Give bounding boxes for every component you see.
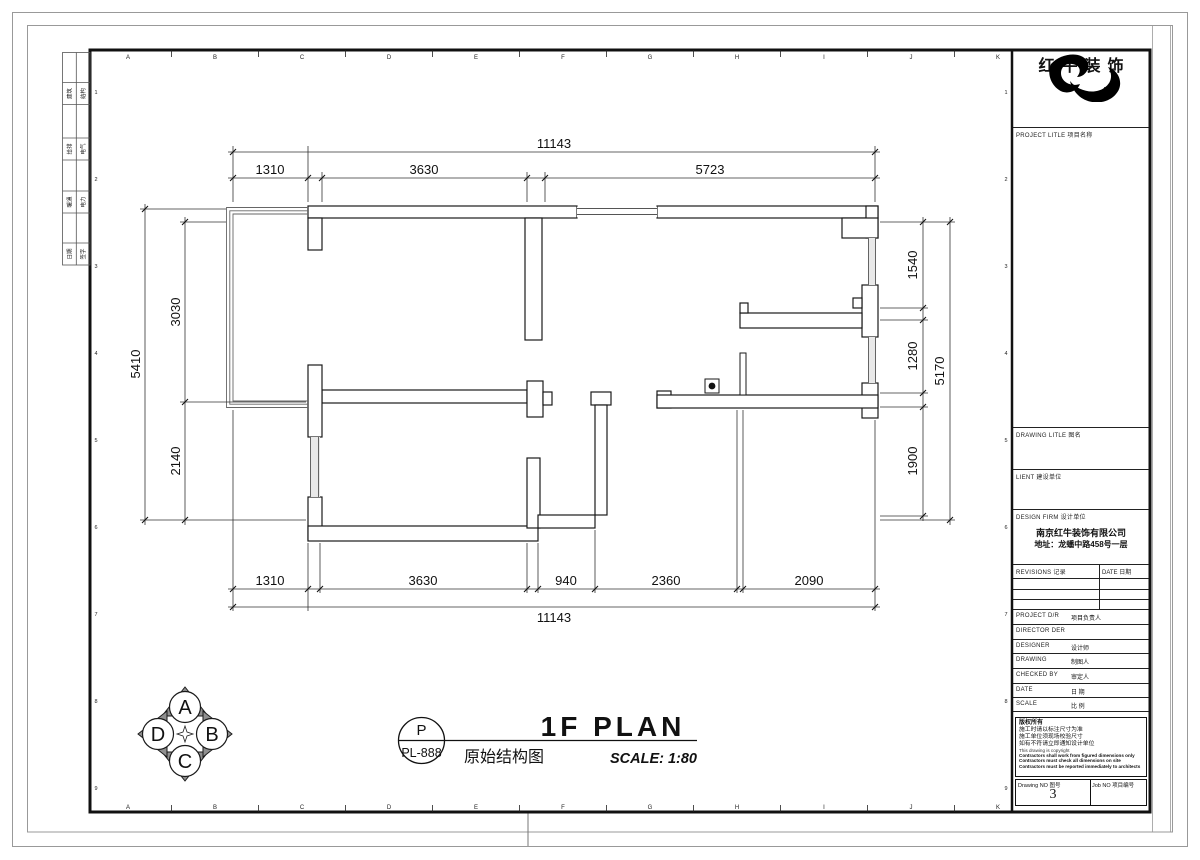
svg-text:8: 8 (94, 699, 97, 705)
sheet-ref-letter: P (416, 722, 426, 739)
svg-text:C: C (300, 55, 305, 61)
svg-text:6: 6 (94, 525, 97, 531)
svg-text:3030: 3030 (168, 298, 183, 327)
svg-text:E: E (474, 805, 478, 811)
svg-text:K: K (996, 805, 1000, 811)
svg-text:B: B (213, 805, 217, 811)
svg-text:3630: 3630 (409, 573, 438, 588)
svg-text:2090: 2090 (795, 573, 824, 588)
svg-text:1310: 1310 (256, 573, 285, 588)
svg-text:2360: 2360 (652, 573, 681, 588)
compass-center-star (177, 726, 193, 742)
gas-meter-dot (709, 383, 716, 390)
svg-text:5170: 5170 (932, 357, 947, 386)
revisions-box: REVISIONS 记录 DATE 日期 (1013, 565, 1149, 610)
svg-text:I: I (823, 805, 825, 811)
row-date: DATE 日 期 (1013, 684, 1149, 698)
svg-text:5410: 5410 (128, 350, 143, 379)
svg-text:1540: 1540 (905, 251, 920, 280)
design-firm-label: DESIGN FIRM 设计单位 (1016, 512, 1086, 521)
svg-text:签字: 签字 (79, 248, 87, 260)
svg-text:H: H (735, 805, 739, 811)
client-box: LIENT 建设单位 (1013, 470, 1149, 510)
project-title-label: PROJECT LITLE 项目名称 (1016, 130, 1093, 139)
title-block: 红牛装饰 PROJECT LITLE 项目名称 DRAWING LITLE 图名… (1013, 50, 1149, 812)
svg-text:1: 1 (1004, 90, 1007, 96)
revisions-date-label: DATE 日期 (1102, 567, 1131, 576)
drawing-title-bar: P PL-888 1F PLAN 原始结构图 SCALE: 1:80 (399, 711, 698, 767)
svg-text:7: 7 (94, 612, 97, 618)
client-label: LIENT 建设单位 (1016, 472, 1062, 481)
project-title-box: PROJECT LITLE 项目名称 (1013, 128, 1149, 428)
svg-text:11143: 11143 (537, 136, 571, 151)
svg-text:2: 2 (94, 177, 97, 183)
svg-text:H: H (735, 55, 739, 61)
svg-text:结构: 结构 (79, 88, 87, 100)
drawing-sheet: 建筑 结构 给排 电气 暖通 电力 日期 签字 A B C D E F G H … (0, 0, 1200, 860)
svg-text:I: I (823, 55, 825, 61)
drawing-number-box: Drawing NO 图号 3 Job NO 项目编号 (1015, 779, 1147, 806)
design-firm-name: 南京红牛装饰有限公司 (1013, 526, 1149, 539)
svg-text:给排: 给排 (65, 143, 73, 155)
svg-text:1310: 1310 (256, 162, 285, 177)
drawing-title-label: DRAWING LITLE 图名 (1016, 430, 1081, 439)
svg-text:J: J (910, 805, 913, 811)
plan-scale: SCALE: 1:80 (610, 751, 697, 767)
svg-text:1: 1 (94, 90, 97, 96)
row-designer: DESIGNER 设计师 (1013, 640, 1149, 654)
svg-text:B: B (205, 724, 218, 746)
sheet-ref-number: PL-888 (401, 746, 441, 760)
revisions-label: REVISIONS 记录 (1016, 567, 1066, 576)
svg-text:D: D (387, 55, 392, 61)
svg-text:G: G (648, 805, 653, 811)
svg-text:5: 5 (94, 438, 97, 444)
svg-text:C: C (300, 805, 305, 811)
svg-text:D: D (387, 805, 392, 811)
brand-logo-icon (1013, 50, 1149, 102)
row-checked-by: CHECKED BY 审定人 (1013, 669, 1149, 684)
svg-text:5723: 5723 (696, 162, 725, 177)
svg-text:9: 9 (94, 786, 97, 792)
svg-text:建筑: 建筑 (65, 88, 73, 100)
svg-text:2140: 2140 (168, 447, 183, 476)
grid-letters-top: A B C D E F G H I J K (126, 50, 1000, 61)
svg-text:1280: 1280 (905, 342, 920, 371)
row-director: DIRECTOR DER (1013, 625, 1149, 640)
floor-plan-walls (308, 206, 878, 541)
row-drawing: DRAWING 制图人 (1013, 654, 1149, 669)
plan-title-en: 1F PLAN (541, 711, 686, 742)
north-compass: A B C D (138, 687, 232, 781)
svg-text:6: 6 (1004, 525, 1007, 531)
job-no-label: Job NO 项目编号 (1092, 781, 1134, 789)
svg-text:4: 4 (94, 351, 97, 357)
svg-text:7: 7 (1004, 612, 1007, 618)
svg-text:3: 3 (1004, 264, 1007, 270)
row-scale: SCALE 比 例 (1013, 698, 1149, 712)
drawing-frame (90, 50, 1150, 812)
svg-text:G: G (648, 55, 653, 61)
svg-text:4: 4 (1004, 351, 1007, 357)
plan-windows (310, 207, 876, 497)
svg-text:9: 9 (1004, 786, 1007, 792)
svg-text:3630: 3630 (410, 162, 439, 177)
copyright-notes: 版权所有 施工时请以标注尺寸为准 施工单位须现场校验尺寸 如有不符请立即通知设计… (1015, 717, 1147, 777)
svg-text:B: B (213, 55, 217, 61)
svg-text:11143: 11143 (537, 610, 571, 625)
svg-text:5: 5 (1004, 438, 1007, 444)
svg-text:F: F (561, 805, 565, 811)
signature-strip (63, 53, 91, 266)
svg-text:3: 3 (94, 264, 97, 270)
svg-text:电力: 电力 (79, 196, 87, 207)
svg-text:A: A (178, 697, 192, 719)
svg-text:日期: 日期 (66, 248, 73, 260)
design-firm-box: DESIGN FIRM 设计单位 南京红牛装饰有限公司 地址：龙蟠中路458号一… (1013, 510, 1149, 565)
svg-text:E: E (474, 55, 478, 61)
drawing-no-value: 3 (1016, 787, 1090, 803)
balcony-walls (227, 208, 309, 408)
svg-text:A: A (126, 55, 130, 61)
brand-box: 红牛装饰 (1013, 50, 1149, 128)
svg-text:A: A (126, 805, 130, 811)
svg-text:电气: 电气 (79, 143, 87, 155)
revisions-divider (1099, 565, 1100, 609)
svg-text:1900: 1900 (905, 447, 920, 476)
design-firm-address: 地址：龙蟠中路458号一层 (1013, 539, 1149, 550)
grid-numbers-sides: 1 2 3 4 5 6 7 8 9 1 2 3 4 5 6 7 8 9 (94, 90, 1007, 792)
svg-text:2: 2 (1004, 177, 1007, 183)
plan-title-cn: 原始结构图 (464, 748, 544, 766)
svg-text:暖通: 暖通 (65, 196, 73, 208)
svg-text:940: 940 (555, 573, 577, 588)
drawing-title-box: DRAWING LITLE 图名 (1013, 428, 1149, 470)
svg-text:F: F (561, 55, 565, 61)
row-project-dr: PROJECT D/R 项目负责人 (1013, 610, 1149, 625)
svg-text:K: K (996, 55, 1000, 61)
svg-text:J: J (910, 55, 913, 61)
svg-text:C: C (178, 751, 192, 773)
svg-text:D: D (151, 724, 165, 746)
svg-text:8: 8 (1004, 699, 1007, 705)
